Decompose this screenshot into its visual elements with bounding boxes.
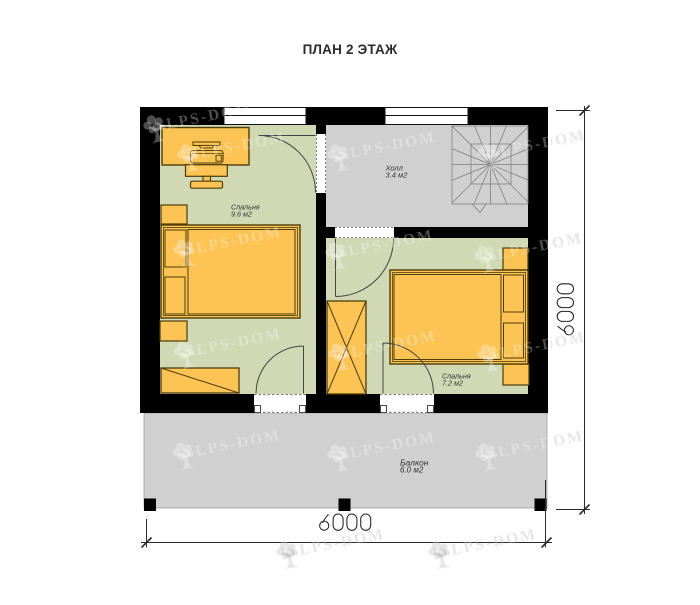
svg-text:3.4 м2: 3.4 м2 <box>386 171 409 180</box>
svg-text:ПЛАН 2 ЭТАЖ: ПЛАН 2 ЭТАЖ <box>303 42 398 57</box>
svg-text:6.0 м2: 6.0 м2 <box>400 466 424 475</box>
svg-text:7.2 м2: 7.2 м2 <box>442 379 463 388</box>
svg-text:9.6 м2: 9.6 м2 <box>231 210 252 219</box>
